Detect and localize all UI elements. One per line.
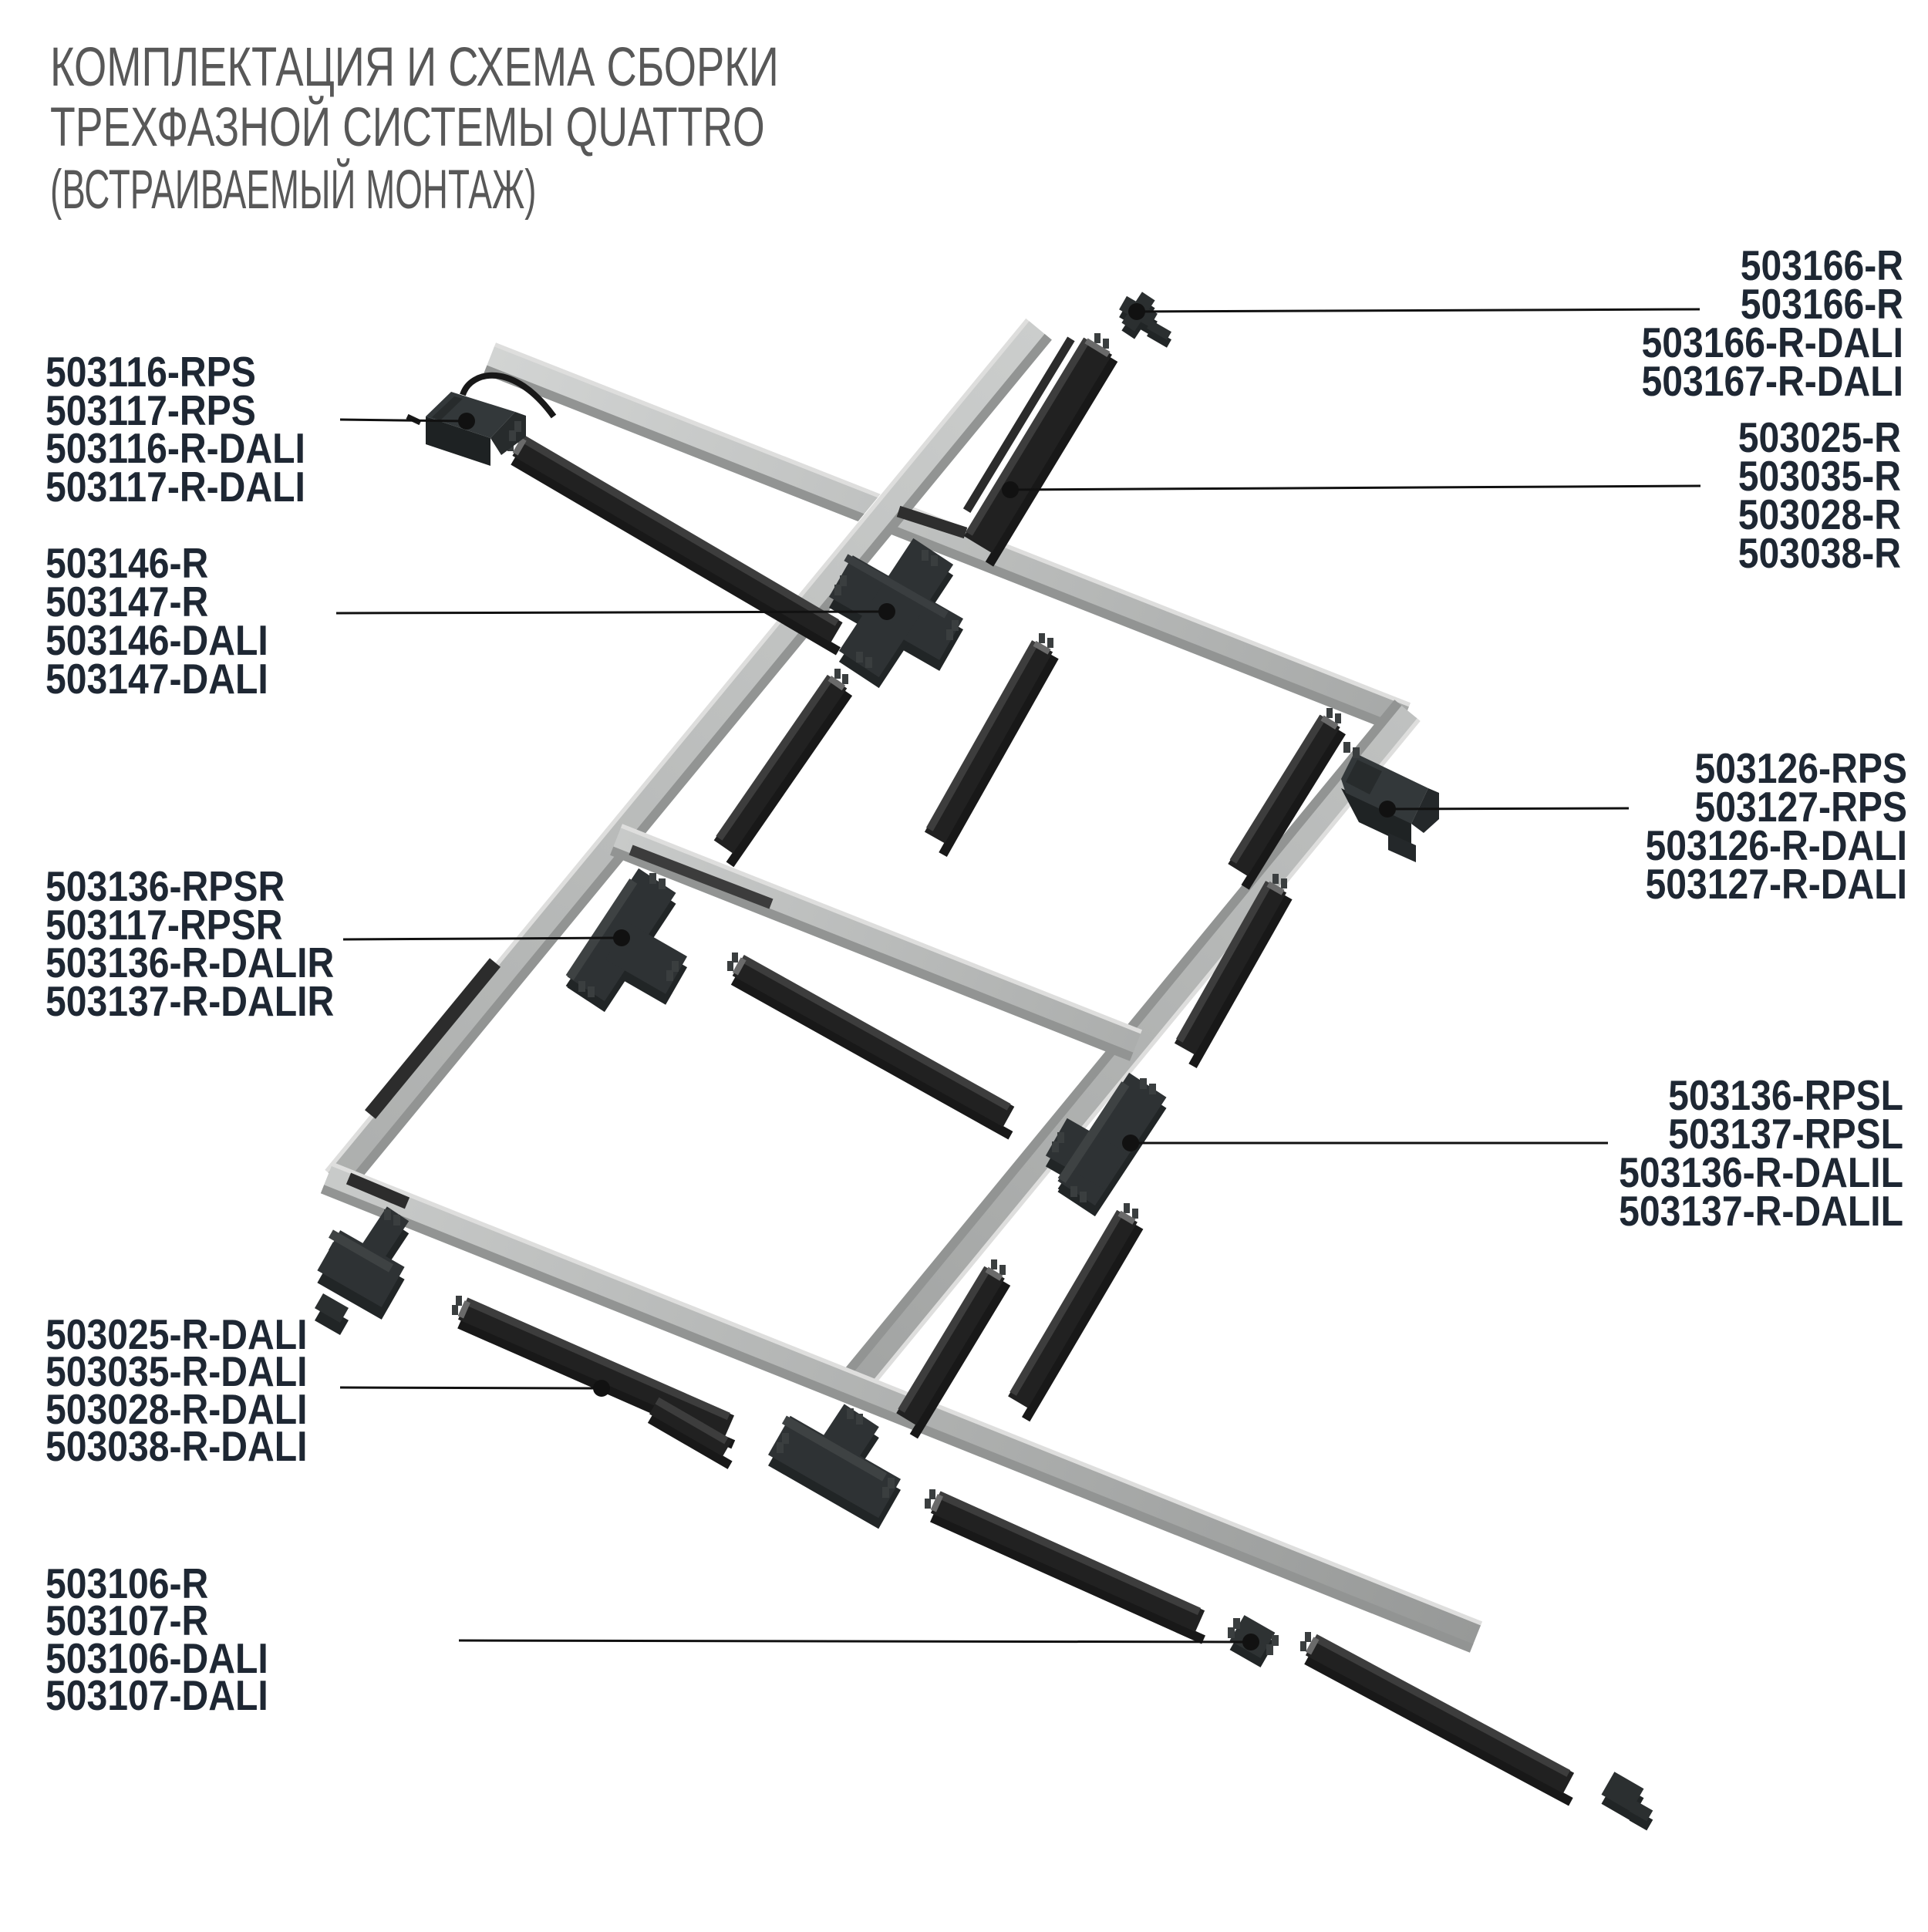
- svg-text:503107-DALI: 503107-DALI: [46, 1671, 268, 1719]
- svg-text:503117-R-DALI: 503117-R-DALI: [46, 463, 305, 511]
- svg-text:(ВСТРАИВАЕМЫЙ МОНТАЖ): (ВСТРАИВАЕМЫЙ МОНТАЖ): [50, 159, 536, 221]
- svg-text:503038-R-DALI: 503038-R-DALI: [46, 1422, 308, 1470]
- svg-text:503038-R: 503038-R: [1738, 529, 1901, 577]
- svg-text:503137-R-DALIL: 503137-R-DALIL: [1619, 1187, 1903, 1235]
- svg-text:503127-R-DALI: 503127-R-DALI: [1645, 860, 1907, 908]
- svg-text:503167-R-DALI: 503167-R-DALI: [1641, 357, 1903, 405]
- svg-text:503147-DALI: 503147-DALI: [46, 655, 268, 703]
- svg-text:ТРЕХФАЗНОЙ СИСТЕМЫ QUATTRO: ТРЕХФАЗНОЙ СИСТЕМЫ QUATTRO: [50, 96, 765, 158]
- svg-text:503137-R-DALIR: 503137-R-DALIR: [46, 977, 334, 1025]
- svg-text:КОМПЛЕКТАЦИЯ И СХЕМА СБОРКИ: КОМПЛЕКТАЦИЯ И СХЕМА СБОРКИ: [50, 37, 779, 98]
